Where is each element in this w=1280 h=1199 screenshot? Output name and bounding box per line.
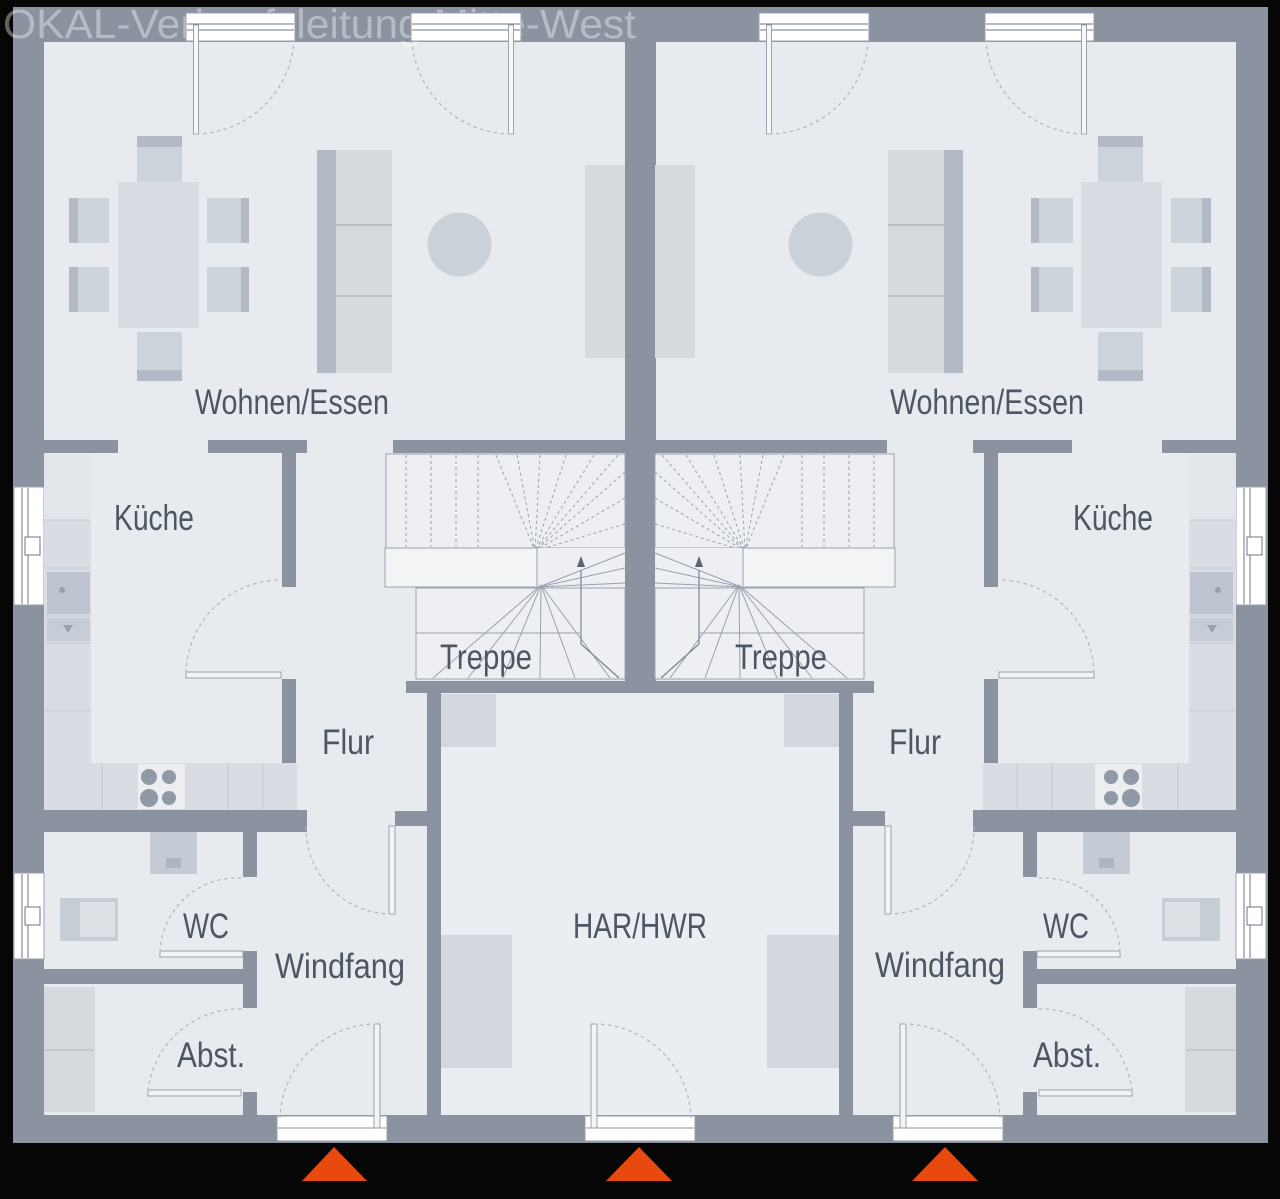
svg-text:WC: WC [1043, 907, 1089, 946]
svg-text:Windfang: Windfang [875, 946, 1005, 985]
svg-text:Flur: Flur [322, 723, 374, 762]
svg-text:Treppe: Treppe [735, 638, 827, 677]
svg-text:Windfang: Windfang [275, 947, 405, 986]
svg-text:Abst.: Abst. [1033, 1036, 1101, 1075]
svg-text:Wohnen/Essen: Wohnen/Essen [890, 383, 1084, 422]
svg-text:HAR/HWR: HAR/HWR [573, 907, 707, 946]
svg-text:OKAL-Verkaufsleitung Mitte-Wes: OKAL-Verkaufsleitung Mitte-West [3, 1, 637, 47]
svg-text:Küche: Küche [1073, 497, 1153, 538]
svg-text:Abst.: Abst. [177, 1036, 245, 1075]
svg-text:Wohnen/Essen: Wohnen/Essen [195, 383, 389, 422]
svg-text:Küche: Küche [114, 497, 194, 538]
svg-text:Flur: Flur [889, 723, 941, 762]
svg-text:WC: WC [183, 907, 229, 946]
svg-text:Treppe: Treppe [440, 638, 532, 677]
